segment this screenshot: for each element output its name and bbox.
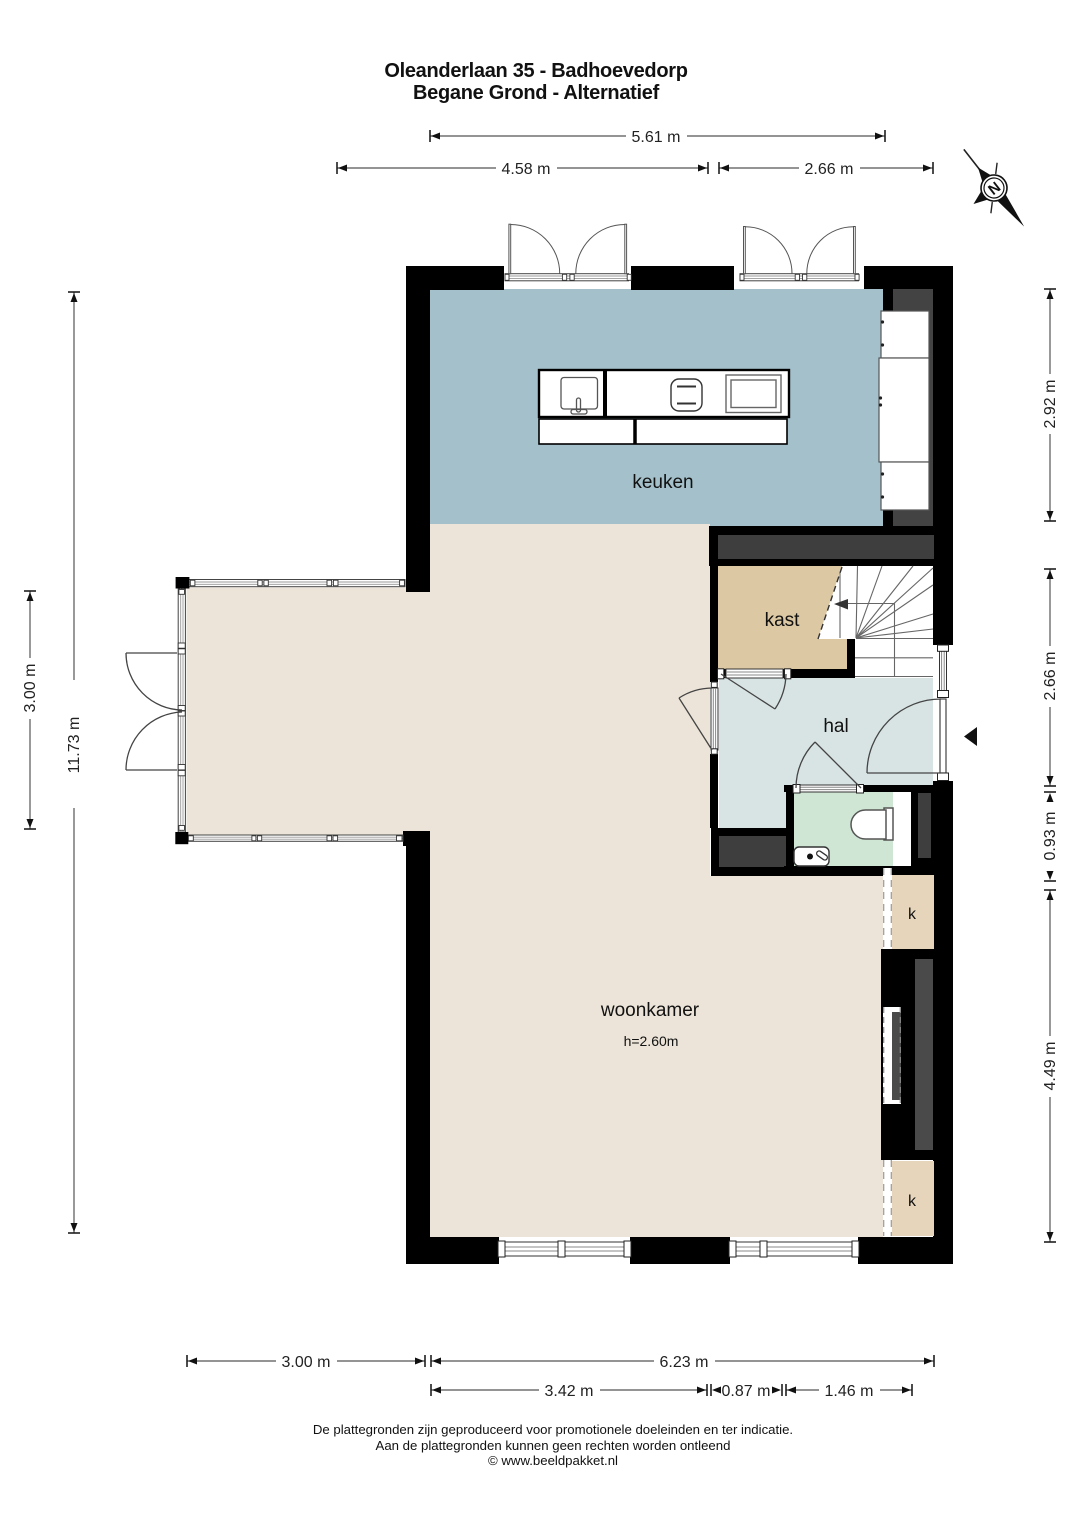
svg-text:Aan de plattegronden kunnen ge: Aan de plattegronden kunnen geen rechten… [376,1438,731,1453]
svg-text:4.58 m: 4.58 m [502,161,551,178]
svg-text:3.42 m: 3.42 m [545,1383,594,1400]
svg-text:k: k [908,1193,917,1210]
svg-text:k: k [908,906,917,923]
svg-text:11.73 m: 11.73 m [66,717,83,774]
svg-text:Begane Grond - Alternatief: Begane Grond - Alternatief [413,82,660,104]
svg-text:woonkamer: woonkamer [600,1000,700,1021]
svg-text:4.49 m: 4.49 m [1042,1042,1059,1091]
svg-text:0.87 m: 0.87 m [722,1383,771,1400]
svg-text:kast: kast [765,610,801,631]
svg-text:© www.beeldpakket.nl: © www.beeldpakket.nl [488,1453,618,1468]
svg-text:Oleanderlaan 35 - Badhoevedorp: Oleanderlaan 35 - Badhoevedorp [384,60,687,82]
svg-text:h=2.60m: h=2.60m [624,1033,679,1049]
svg-text:6.23 m: 6.23 m [660,1354,709,1371]
svg-text:0.93 m: 0.93 m [1042,812,1059,861]
svg-text:2.92 m: 2.92 m [1042,380,1059,429]
svg-text:2.66 m: 2.66 m [805,161,854,178]
svg-text:2.66 m: 2.66 m [1042,652,1059,701]
svg-text:3.00 m: 3.00 m [22,664,39,713]
svg-text:hal: hal [823,716,848,737]
svg-text:1.46 m: 1.46 m [825,1383,874,1400]
svg-text:De plattegronden zijn geproduc: De plattegronden zijn geproduceerd voor … [313,1422,793,1437]
svg-text:keuken: keuken [632,472,693,493]
svg-text:3.00 m: 3.00 m [282,1354,331,1371]
svg-text:5.61 m: 5.61 m [632,129,681,146]
